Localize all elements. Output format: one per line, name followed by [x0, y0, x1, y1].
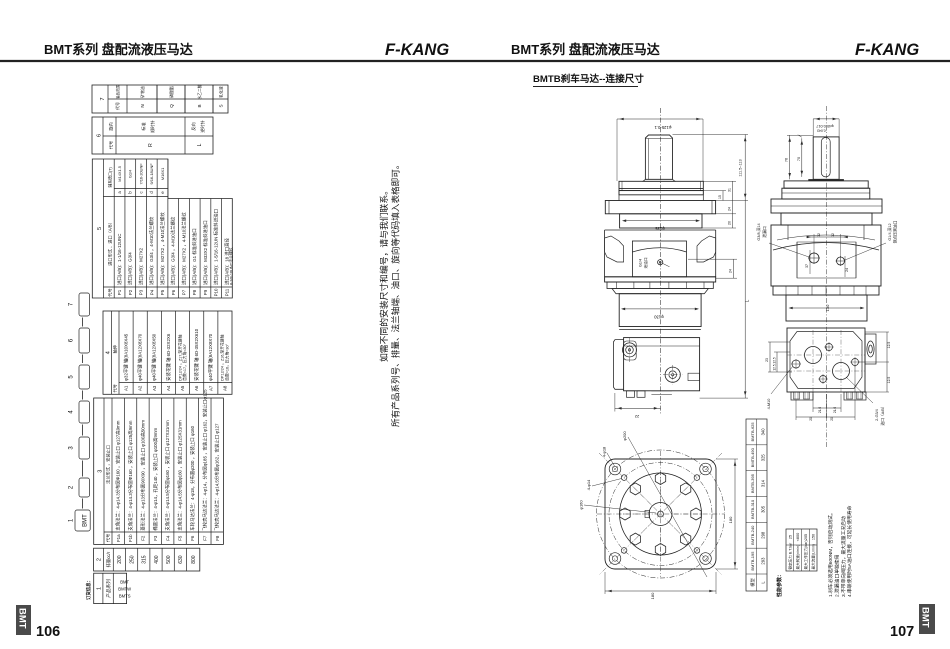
svg-text:轴伸: 轴伸	[112, 345, 119, 353]
svg-text:进口(A/B)：M33X2 标准斜进油口: 进口(A/B)：M33X2 标准斜进油口	[202, 220, 209, 285]
svg-text:进口(A/B)：1-1/16-12UNC: 进口(A/B)：1-1/16-12UNC	[116, 234, 123, 285]
svg-text:800: 800	[191, 555, 197, 564]
svg-text:70: 70	[797, 157, 801, 161]
svg-text:31: 31	[727, 188, 731, 192]
svg-text:25: 25	[788, 535, 792, 539]
svg-text:水乙二醇: 水乙二醇	[197, 84, 202, 99]
svg-text:BMTB-395: BMTB-395	[750, 473, 755, 493]
svg-text:F2: F2	[141, 535, 146, 541]
svg-text:支角法兰：4-φ14.5分布圆φ160 ，安装止口 φ127: 支角法兰：4-φ14.5分布圆φ160 ，安装止口 φ127X31mm	[164, 420, 171, 531]
svg-text:BMT: BMT	[17, 608, 28, 629]
svg-text:G1/4: G1/4	[128, 169, 133, 178]
svg-text:M14X1.5: M14X1.5	[117, 166, 122, 182]
svg-text:进口(A/B)：1-5/16-12UN 标准斜进油口: 进口(A/B)：1-5/16-12UN 标准斜进油口	[213, 209, 220, 285]
svg-text:订货信息：: 订货信息：	[85, 578, 92, 600]
svg-text:12.5: 12.5	[887, 377, 891, 384]
svg-text:φ40平键 轴(8A12X8X70: φ40平键 轴(8A12X8X70	[207, 333, 214, 381]
svg-text:298: 298	[760, 531, 765, 539]
svg-text:180: 180	[728, 516, 733, 523]
svg-text:φ40平键 轴(8A12X8X50: φ40平键 轴(8A12X8X50	[151, 333, 158, 381]
svg-text:BMT系列 盘配流液压马达: BMT系列 盘配流液压马达	[511, 42, 660, 57]
svg-text:F-KANG: F-KANG	[385, 41, 449, 59]
svg-text:安装花键 轴 6D-32X2X6: 安装花键 轴 6D-32X2X6	[165, 333, 172, 381]
svg-text:P9: P9	[203, 289, 208, 295]
svg-text:P7: P7	[181, 289, 186, 295]
svg-text:P2: P2	[128, 289, 133, 295]
svg-text:24: 24	[728, 269, 732, 273]
svg-text:泄漏口: 泄漏口	[762, 226, 767, 238]
svg-text:S: S	[218, 104, 223, 107]
svg-text:24: 24	[727, 207, 731, 211]
svg-text:2-G3/4: 2-G3/4	[875, 409, 879, 421]
svg-text:L: L	[197, 143, 203, 146]
svg-text:进口(A/B)：M27X2: 进口(A/B)：M27X2	[137, 247, 144, 285]
svg-text:M16X1: M16X1	[160, 168, 165, 180]
svg-text:标准: 标准	[140, 122, 147, 130]
svg-text:所有产品系列号、排量、法兰轴端、油口、旋向等代码填入表格即可: 所有产品系列号、排量、法兰轴端、油口、旋向等代码填入表格即可。	[390, 161, 401, 427]
svg-text:A6: A6	[194, 385, 199, 391]
svg-text:4-φ14: 4-φ14	[586, 479, 591, 490]
svg-text:22: 22	[634, 414, 639, 419]
svg-text:107: 107	[890, 624, 914, 640]
svg-text:法兰形式 ，安装止口: 法兰形式 ，安装止口	[105, 445, 112, 484]
svg-text:BMTB-310: BMTB-310	[750, 499, 755, 519]
svg-text:φ200: φ200	[622, 431, 627, 441]
svg-text:3.不带单向阀压力，最大流量工况启动: 3.不带单向阀压力，最大流量工况启动	[840, 516, 847, 597]
svg-text:2.泄漏油口单独使用: 2.泄漏油口单独使用	[833, 554, 840, 597]
svg-text:辅系统口(T): 辅系统口(T)	[108, 166, 113, 187]
svg-text:P10: P10	[214, 288, 219, 296]
svg-text:排量cc/r: 排量cc/r	[105, 551, 112, 567]
svg-text:测点压测油口: 测点压测油口	[893, 220, 898, 243]
svg-text:630: 630	[178, 555, 184, 564]
svg-text:B: B	[197, 104, 202, 107]
svg-text:DP12/24 ，Z16,渐开花键轴: DP12/24 ，Z16,渐开花键轴	[220, 334, 225, 380]
svg-text:Q: Q	[169, 104, 174, 108]
svg-text:φ130: φ130	[653, 315, 663, 320]
svg-text:最大转速(r/min): 最大转速(r/min)	[795, 545, 800, 570]
svg-text:20: 20	[727, 221, 731, 225]
svg-text:250: 250	[129, 555, 135, 564]
svg-text:1: 1	[97, 587, 103, 590]
svg-text:BMTB刹车马达--连接尺寸: BMTB刹车马达--连接尺寸	[533, 73, 644, 85]
svg-text:G1/4,深12: G1/4,深12	[887, 223, 892, 240]
svg-text:37: 37	[805, 264, 809, 268]
svg-text:12: 12	[817, 233, 821, 237]
svg-text:293: 293	[760, 557, 765, 565]
svg-text:BMT: BMT	[83, 514, 89, 527]
svg-text:乳化液: 乳化液	[218, 86, 223, 98]
svg-text:旋向: 旋向	[108, 122, 115, 130]
svg-text:A2: A2	[138, 385, 143, 391]
svg-text:21.6: 21.6	[833, 407, 837, 413]
svg-text:DP12/24 ，Z17,渐开花键轴: DP12/24 ，Z17,渐开花键轴	[177, 334, 182, 380]
svg-text:车轮马达法兰：4-φ18，分布圆φ200 ，安装止口: 车轮马达法兰：4-φ18，分布圆φ200 ，安装止口 φ160	[189, 425, 196, 530]
svg-text:最大工作压力(bar): 最大工作压力(bar)	[803, 540, 808, 569]
svg-text:325: 325	[760, 454, 765, 462]
svg-text:20: 20	[830, 417, 834, 421]
svg-text:模型: 模型	[749, 578, 756, 586]
svg-text:A4: A4	[166, 385, 171, 391]
svg-text:P1: P1	[117, 289, 122, 295]
svg-text:磷酸酯: 磷酸酯	[169, 86, 174, 98]
svg-text:5: 5	[97, 227, 103, 230]
svg-text:F3: F3	[153, 535, 158, 541]
svg-text:F1a: F1a	[116, 534, 121, 542]
svg-text:P4: P4	[149, 289, 154, 295]
svg-text:飞轮壳马达法兰：4-φ14，分布圆φ185 ，安装止口 φ1: 飞轮壳马达法兰：4-φ14，分布圆φ185 ，安装止口 φ162，安装止口φ12…	[201, 389, 208, 531]
svg-text:1.刹车必须选用600NM，否则启动测试。: 1.刹车必须选用600NM，否则启动测试。	[827, 510, 834, 597]
svg-text:P3: P3	[139, 289, 144, 295]
svg-text:椭圆法兰：4-φ14，孔距140 ，安装止口 φ10: 椭圆法兰：4-φ14，孔距140 ，安装止口 φ100高9mm	[152, 427, 159, 530]
svg-text:R: R	[148, 143, 154, 147]
svg-text:400: 400	[154, 555, 160, 564]
svg-text:2: 2	[96, 558, 102, 561]
svg-text:A1: A1	[124, 385, 129, 391]
svg-text:A5: A5	[180, 385, 185, 391]
svg-text:进口(A/B)：G3/4 ，4-M10法兰螺纹: 进口(A/B)：G3/4 ，4-M10法兰螺纹	[170, 216, 177, 285]
svg-text:额定压力 B.T.bar: 额定压力 B.T.bar	[787, 542, 792, 570]
svg-text:6: 6	[97, 134, 103, 137]
svg-text:齿数≈16，压力角≈30°: 齿数≈16，压力角≈30°	[225, 343, 230, 380]
svg-text:BMT系列 盘配流液压马达: BMT系列 盘配流液压马达	[44, 42, 193, 57]
svg-text:支角法兰：4-φ14.3分布圆Φ160 ，安装止口 φ127: 支角法兰：4-φ14.3分布圆Φ160 ，安装止口 φ127高9mm	[115, 420, 122, 530]
svg-text:314: 314	[760, 479, 765, 487]
svg-text:F8: F8	[215, 535, 220, 541]
svg-text:4-M10: 4-M10	[767, 399, 771, 410]
svg-text:φ40-0.017: φ40-0.017	[816, 124, 833, 128]
svg-text:A8: A8	[222, 385, 227, 391]
svg-text:顺时针: 顺时针	[149, 120, 156, 133]
svg-text:P6: P6	[171, 289, 176, 295]
svg-text:76: 76	[785, 158, 789, 162]
svg-text:F6: F6	[190, 535, 195, 541]
svg-text:φ40平键 轴(8A12X8X70: φ40平键 轴(8A12X8X70	[137, 333, 144, 381]
svg-text:进口(A/B)：G3/4 ，4-M10法兰螺纹: 进口(A/B)：G3/4 ，4-M10法兰螺纹	[148, 216, 155, 285]
svg-text:21.6: 21.6	[818, 407, 822, 413]
svg-text:500: 500	[166, 555, 172, 564]
svg-text:P5: P5	[160, 289, 165, 295]
svg-text:逆时针: 逆时针	[199, 120, 206, 133]
svg-text:F7: F7	[202, 535, 207, 541]
svg-text:111.5~113: 111.5~113	[739, 159, 743, 176]
svg-text:G1/4: G1/4	[639, 259, 643, 267]
svg-text:代号: 代号	[108, 141, 115, 149]
svg-text:180: 180	[650, 592, 655, 599]
svg-text:支角法兰：4-φ14.5分布圆φ160 ，安装止口 φ125: 支角法兰：4-φ14.5分布圆φ160 ，安装止口 φ125X31mm	[177, 420, 184, 531]
svg-text:BMT: BMT	[120, 580, 129, 585]
svg-text:进口(A/B)：G1 标准斜进油口: 进口(A/B)：G1 标准斜进油口	[191, 228, 198, 285]
svg-text:φ160: φ160	[579, 500, 584, 510]
svg-text:12: 12	[831, 233, 835, 237]
svg-text:P8: P8	[192, 289, 197, 295]
svg-text:12.5: 12.5	[887, 342, 891, 349]
svg-text:4.串联使用时5A油口连接，可延长使用寿命: 4.串联使用时5A油口连接，可延长使用寿命	[846, 505, 853, 597]
svg-text:进口(A/B)：G3/4: 进口(A/B)：G3/4	[127, 252, 134, 285]
svg-text:BMTB-195: BMTB-195	[750, 551, 755, 571]
svg-text:BMTS: BMTS	[119, 594, 131, 599]
svg-text:P11: P11	[224, 288, 229, 296]
svg-text:12.5,12.5: 12.5,12.5	[773, 357, 777, 371]
svg-text:F-KANG: F-KANG	[855, 41, 919, 59]
svg-text:BMTW: BMTW	[118, 587, 131, 592]
svg-text:c: c	[138, 191, 143, 193]
svg-text:产品系列: 产品系列	[105, 579, 112, 598]
svg-text:支角法兰：4-φ14.3分布圆Φ160 ，安装止口 φ125: 支角法兰：4-φ14.3分布圆Φ160 ，安装止口 φ125高9mm	[127, 420, 134, 530]
svg-text:进口形式 、进口（A/B）: 进口形式 、进口（A/B）	[107, 220, 114, 266]
svg-text:20: 20	[809, 417, 813, 421]
svg-text:菱形法兰：4-φ13分布圆90X90 ，安装止口 φ10: 菱形法兰：4-φ13分布圆90X90 ，安装止口 φ100高50mm	[139, 420, 146, 531]
svg-text:23: 23	[765, 358, 769, 362]
svg-text:A7: A7	[208, 385, 213, 391]
svg-text:φ125-0.1: φ125-0.1	[654, 125, 672, 130]
svg-text:代号: 代号	[114, 102, 120, 110]
svg-text:矿物油: 矿物油	[140, 86, 145, 98]
svg-text:最大流量(L/min): 最大流量(L/min)	[811, 544, 816, 570]
svg-text:油品范围: 油品范围	[115, 84, 120, 99]
svg-text:4-φ18: 4-φ18	[602, 446, 607, 457]
svg-text:106: 106	[36, 624, 60, 640]
svg-text:315: 315	[142, 555, 148, 564]
svg-text:9/16-18UNF: 9/16-18UNF	[149, 163, 154, 185]
svg-text:F5: F5	[178, 535, 183, 541]
svg-text:130: 130	[825, 304, 830, 311]
svg-text:N: N	[140, 104, 145, 107]
svg-text:BMT: BMT	[920, 607, 931, 628]
svg-text:进口(A/B)：M27X2 ，4-M10法兰螺纹: 进口(A/B)：M27X2 ，4-M10法兰螺纹	[159, 212, 166, 285]
svg-text:代号: 代号	[107, 288, 114, 296]
svg-text:7/16-20UNF: 7/16-20UNF	[138, 163, 143, 185]
svg-text:性能参数：: 性能参数：	[776, 572, 783, 598]
svg-text:4: 4	[105, 351, 111, 354]
svg-text:F1b: F1b	[128, 534, 133, 542]
svg-text:BMTB-490: BMTB-490	[750, 447, 755, 467]
svg-text:3: 3	[97, 470, 103, 473]
svg-text:7: 7	[100, 97, 106, 100]
svg-text:飞轮壳马达法兰：4-φ14.5分布圆φ162，安装止口 φ1: 飞轮壳马达法兰：4-φ14.5分布圆φ162，安装止口 φ127	[214, 423, 221, 531]
svg-text:安装花键 轴 6D-35X2X610: 安装花键 轴 6D-35X2X610	[193, 328, 200, 381]
svg-text:340: 340	[760, 428, 765, 436]
svg-text:油口（A/B）: 油口（A/B）	[880, 404, 885, 425]
svg-text:G3/8,深14: G3/8,深14	[756, 223, 761, 240]
svg-text:φ32平键 轴(8A10X8X45: φ32平键 轴(8A10X8X45	[122, 333, 129, 381]
svg-text:A3: A3	[152, 385, 157, 391]
svg-text:150: 150	[812, 534, 816, 540]
svg-text:<800: <800	[796, 533, 800, 542]
svg-text:如需不同的安装尺寸和编号，请与我们联系。: 如需不同的安装尺寸和编号，请与我们联系。	[378, 186, 389, 362]
svg-text:泄油口: 泄油口	[643, 257, 648, 268]
svg-text:进口(A/B)：M27X2 ，4-M10法兰螺纹: 进口(A/B)：M27X2 ，4-M10法兰螺纹	[180, 212, 187, 285]
svg-text:200: 200	[117, 555, 123, 564]
svg-text:代号: 代号	[112, 384, 119, 392]
svg-text:-0.043: -0.043	[817, 129, 827, 133]
svg-text:代号: 代号	[105, 534, 112, 542]
svg-text:BMTB-240: BMTB-240	[750, 525, 755, 545]
svg-text:反向: 反向	[190, 122, 197, 130]
svg-text:F4: F4	[165, 535, 170, 541]
svg-text:15: 15	[718, 195, 722, 199]
svg-text:24: 24	[845, 268, 849, 272]
svg-text:齿数≈17，压力角≈30°: 齿数≈17，压力角≈30°	[182, 343, 187, 380]
svg-text:8-3/8-16UNC法兰螺纹: 8-3/8-16UNC法兰螺纹	[229, 247, 234, 285]
svg-text:305: 305	[760, 505, 765, 513]
svg-text:BMTB-625: BMTB-625	[750, 422, 755, 442]
svg-text:205: 205	[804, 534, 808, 540]
